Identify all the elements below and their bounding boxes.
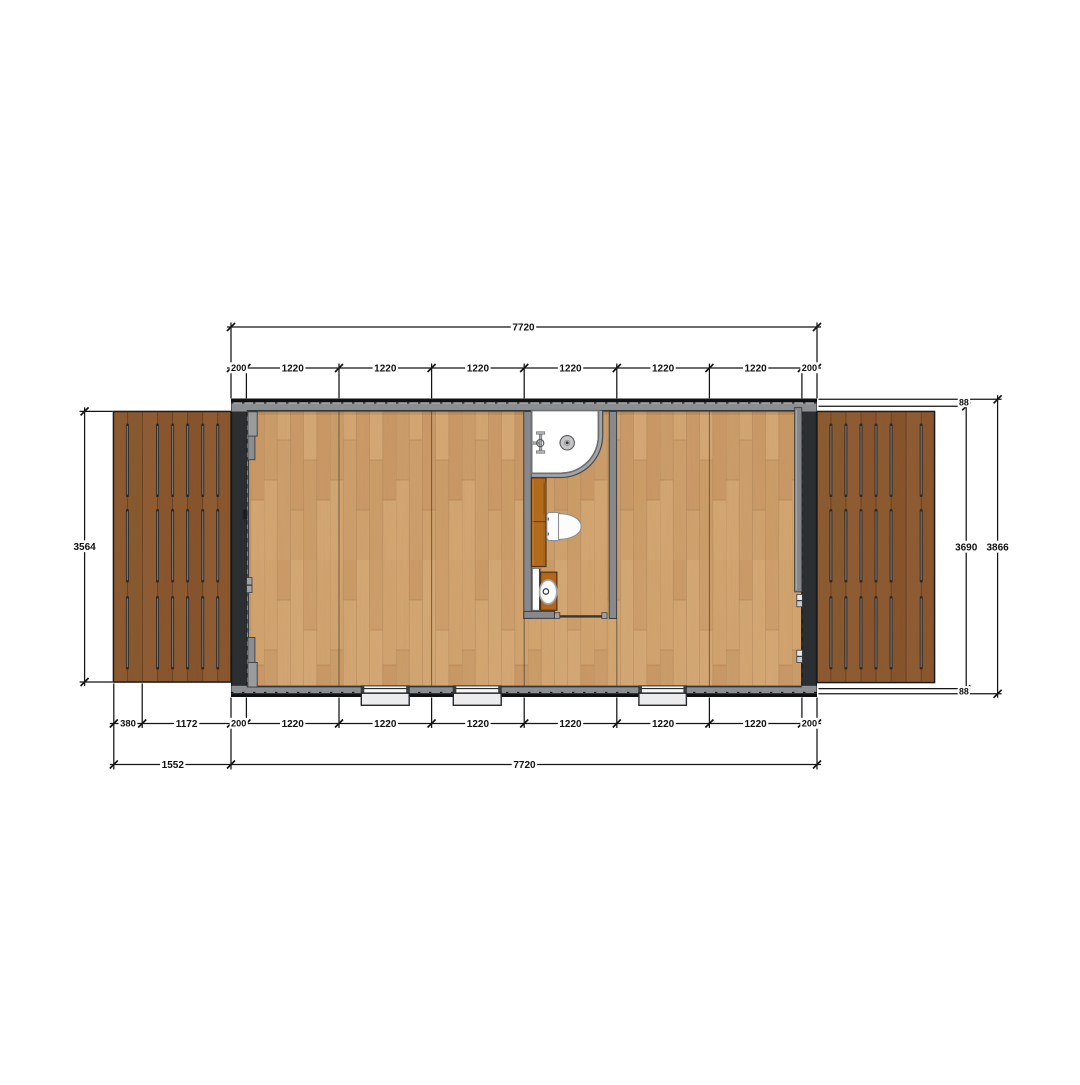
svg-text:7720: 7720 (512, 322, 535, 333)
svg-text:1220: 1220 (652, 719, 675, 730)
svg-text:1220: 1220 (282, 719, 305, 730)
svg-text:88: 88 (959, 687, 969, 697)
svg-text:3690: 3690 (955, 542, 978, 553)
svg-text:1220: 1220 (559, 363, 582, 374)
svg-text:1220: 1220 (744, 719, 767, 730)
svg-text:1220: 1220 (374, 719, 397, 730)
svg-text:380: 380 (120, 719, 136, 730)
svg-text:3564: 3564 (73, 542, 96, 553)
svg-text:200: 200 (231, 719, 246, 729)
svg-text:88: 88 (959, 397, 969, 407)
svg-text:200: 200 (231, 363, 246, 373)
svg-text:3866: 3866 (986, 542, 1009, 553)
svg-text:7720: 7720 (513, 760, 536, 771)
svg-text:1552: 1552 (162, 760, 185, 771)
svg-text:1220: 1220 (744, 363, 767, 374)
svg-text:1220: 1220 (652, 363, 675, 374)
svg-text:1220: 1220 (467, 719, 490, 730)
svg-text:1172: 1172 (176, 719, 198, 730)
svg-text:1220: 1220 (282, 363, 305, 374)
svg-text:1220: 1220 (374, 363, 397, 374)
svg-text:200: 200 (802, 363, 817, 373)
svg-text:1220: 1220 (467, 363, 490, 374)
svg-text:200: 200 (802, 719, 817, 729)
svg-text:1220: 1220 (559, 719, 582, 730)
